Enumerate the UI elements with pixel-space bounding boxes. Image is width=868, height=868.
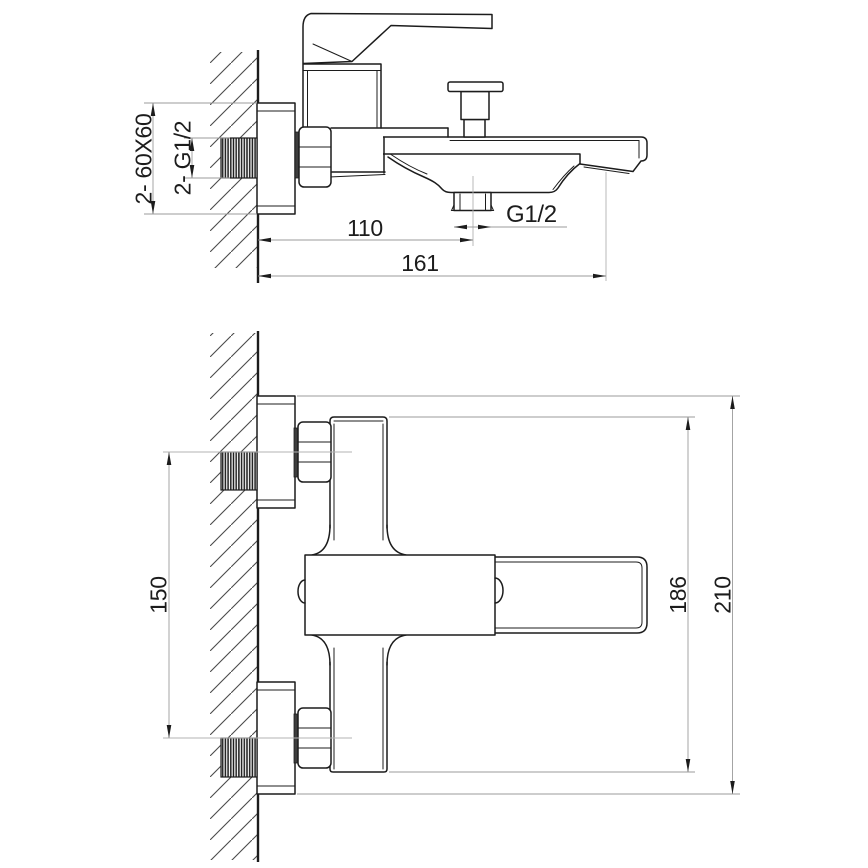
wall-hatch-icon — [210, 333, 257, 860]
supply-thread-top — [221, 452, 257, 490]
wall-section-front — [210, 331, 258, 862]
dimension-label-186: 186 — [665, 576, 691, 613]
mounting-flange-side — [257, 103, 295, 214]
dimension-label-flange: 2- 60X60 — [131, 114, 157, 205]
dimension-label-210: 210 — [710, 576, 736, 613]
dimension-label-110: 110 — [347, 215, 383, 241]
lever-handle-front — [495, 557, 647, 633]
cartridge-cap-arc — [298, 580, 305, 603]
cartridge-block-front — [305, 555, 495, 635]
hex-nut-side — [299, 127, 331, 187]
front-view: 150 186 210 — [146, 331, 741, 862]
technical-drawing-canvas: 2- 60X60 2- G1/2 G1/2 110 161 — [0, 0, 868, 868]
shower-outlet-side — [452, 193, 494, 211]
spout-side — [383, 137, 647, 174]
dimension-label-inlet-thread: 2- G1/2 — [170, 121, 196, 196]
faucet-dimension-drawing: 2- 60X60 2- G1/2 G1/2 110 161 — [0, 0, 868, 868]
dimension-label-150: 150 — [146, 576, 172, 613]
dimensions-side: 2- 60X60 2- G1/2 G1/2 110 161 — [131, 103, 607, 278]
spout-skirt-side — [388, 155, 580, 193]
mixer-body-side — [303, 14, 647, 211]
dimension-label-161: 161 — [401, 250, 438, 276]
supply-thread-bottom — [221, 738, 257, 777]
diverter-knob-side — [448, 82, 503, 137]
lever-handle-side — [303, 14, 492, 64]
dimension-label-outlet-thread: G1/2 — [506, 201, 557, 228]
side-view: 2- 60X60 2- G1/2 G1/2 110 161 — [131, 14, 648, 284]
supply-thread-side — [221, 138, 257, 178]
